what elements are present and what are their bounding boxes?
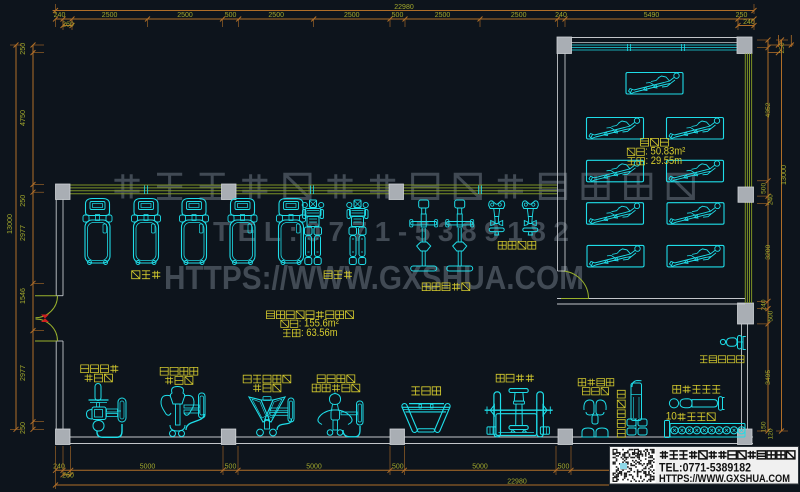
- svg-text:22980: 22980: [394, 4, 414, 11]
- svg-text:3495: 3495: [765, 370, 772, 385]
- svg-text:2500: 2500: [511, 12, 527, 19]
- svg-text:5000: 5000: [306, 463, 322, 470]
- svg-text:240: 240: [555, 12, 567, 19]
- svg-text:240: 240: [743, 19, 755, 26]
- svg-text:5000: 5000: [140, 463, 156, 470]
- svg-text:240: 240: [54, 12, 66, 19]
- svg-text:500: 500: [392, 463, 404, 470]
- svg-text:: 63.56m: : 63.56m: [301, 327, 338, 339]
- svg-text:2500: 2500: [435, 12, 451, 19]
- svg-text:2500: 2500: [344, 12, 360, 19]
- svg-text:500: 500: [225, 463, 237, 470]
- svg-text:260: 260: [62, 473, 74, 480]
- svg-text:5490: 5490: [644, 12, 660, 19]
- svg-text:4352: 4352: [765, 102, 772, 117]
- svg-text:250: 250: [20, 195, 27, 207]
- svg-text:500: 500: [558, 463, 570, 470]
- svg-text:2500: 2500: [102, 12, 118, 19]
- svg-text:250: 250: [20, 43, 27, 55]
- svg-text:10: 10: [666, 411, 677, 423]
- svg-text:500: 500: [768, 310, 775, 321]
- svg-text:13000: 13000: [781, 165, 788, 185]
- svg-text:250: 250: [779, 42, 786, 53]
- svg-text:250: 250: [20, 422, 27, 434]
- svg-text:4750: 4750: [20, 110, 27, 126]
- svg-text:13000: 13000: [7, 214, 14, 234]
- svg-text:5000: 5000: [472, 463, 488, 470]
- svg-text:: 29.55m: : 29.55m: [646, 155, 683, 167]
- svg-text:1546: 1546: [20, 288, 27, 304]
- svg-text:2500: 2500: [177, 12, 193, 19]
- svg-text:250: 250: [736, 12, 748, 19]
- svg-text:2977: 2977: [20, 225, 27, 241]
- svg-text:500: 500: [392, 12, 404, 19]
- svg-text:240: 240: [768, 194, 775, 205]
- svg-text:2977: 2977: [20, 365, 27, 381]
- svg-text:HTTPS://WWW.GXSHUA.COM: HTTPS://WWW.GXSHUA.COM: [659, 473, 790, 485]
- svg-text:120: 120: [768, 428, 775, 439]
- svg-text:500: 500: [761, 183, 768, 194]
- svg-text:3200: 3200: [765, 244, 772, 259]
- svg-text:500: 500: [225, 12, 237, 19]
- svg-text:2500: 2500: [268, 12, 284, 19]
- svg-text:HTTPS://WWW.GXSHUA.COM: HTTPS://WWW.GXSHUA.COM: [164, 259, 584, 296]
- svg-text:22980: 22980: [507, 479, 527, 486]
